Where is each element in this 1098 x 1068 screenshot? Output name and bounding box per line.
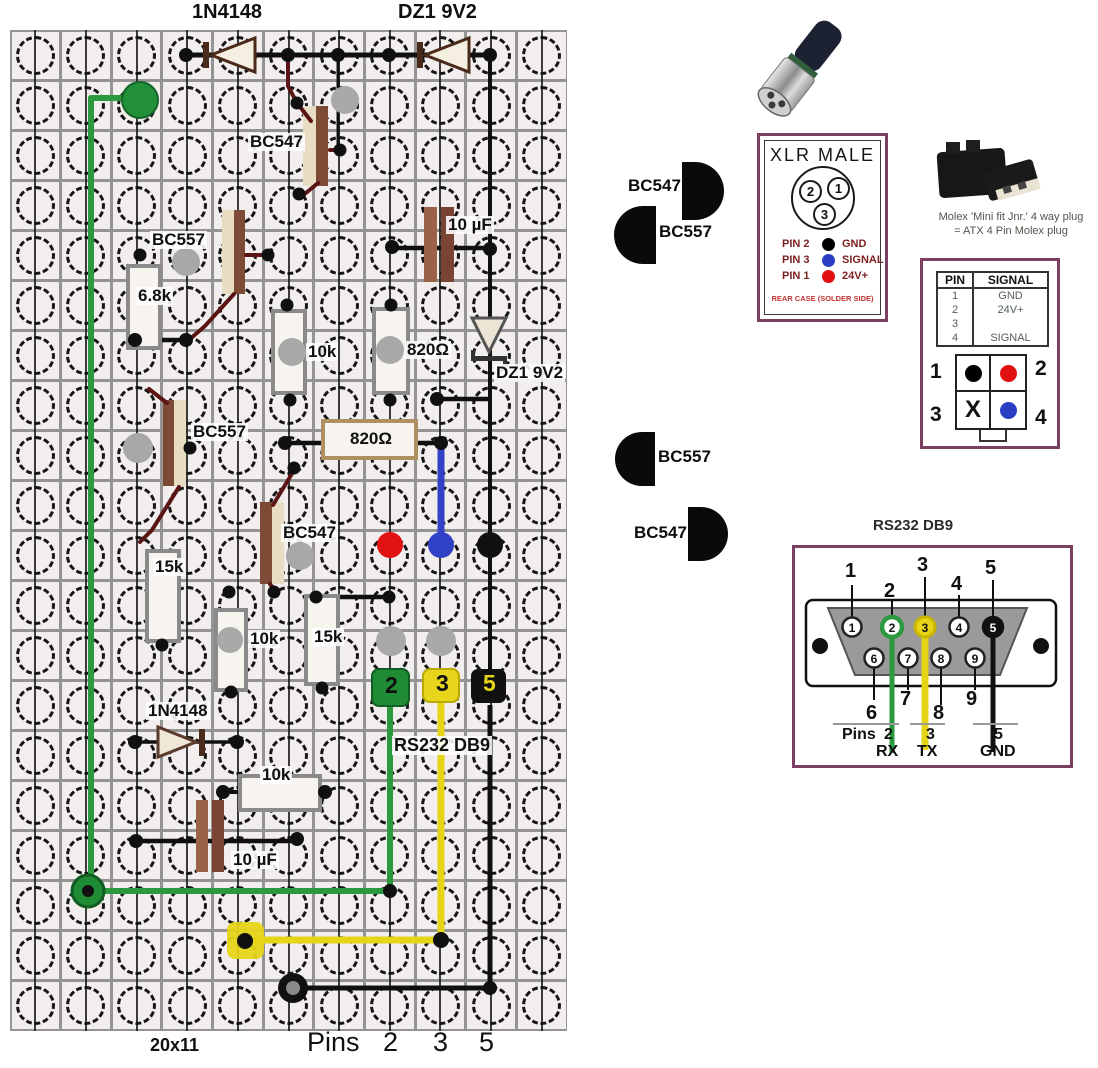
blue-dot — [428, 532, 454, 558]
label-1n4148-2: 1N4148 — [146, 702, 210, 720]
label-bc557-2: BC557 — [191, 423, 248, 441]
label-10uf-1: 10 µF — [446, 216, 494, 234]
xlr-signal-dot — [822, 254, 835, 267]
molex-num-4: 4 — [1035, 406, 1047, 430]
symbol-label-bc557-top: BC557 — [659, 222, 712, 242]
molex-latch — [979, 430, 1007, 442]
pad-3-number: 3 — [434, 671, 451, 695]
molex-row-pin: 1 — [938, 289, 974, 303]
circuit-overlay: 1 2 3 4 5 6 7 8 9 — [0, 0, 1098, 1068]
molex-row-signal — [974, 317, 1047, 331]
diode-1n4148-top — [203, 38, 255, 72]
label-10uf-2: 10 µF — [231, 851, 279, 869]
capacitor-10uf-bottom — [196, 800, 224, 872]
rs232-pin2-label: 2 — [884, 726, 893, 744]
rs232-leader-2: 2 — [884, 580, 895, 603]
xlr-24v-dot — [822, 270, 835, 283]
transistor-bc557-2 — [163, 400, 186, 486]
rs232-gnd-label: GND — [980, 743, 1016, 761]
rs232-leader-3: 3 — [917, 554, 928, 577]
transistor-bc557-1 — [222, 210, 245, 294]
xlr-pin1-circle: 1 — [827, 177, 850, 200]
label-bc557-1: BC557 — [150, 231, 207, 249]
solder-dots — [82, 48, 497, 995]
xlr-pin3-circle: 3 — [813, 203, 836, 226]
symbol-label-bc547-mid: BC547 — [634, 523, 687, 543]
label-dz1-2: DZ1 9V2 — [494, 364, 565, 382]
molex-row-signal: GND — [974, 289, 1047, 303]
molex-row-signal: SIGNAL — [974, 331, 1047, 345]
green-pad-top — [122, 82, 158, 118]
molex-num-3: 3 — [930, 403, 942, 427]
label-820-2: 820Ω — [338, 430, 404, 448]
molex-caption-2: = ATX 4 Pin Molex plug — [916, 225, 1098, 237]
black-dot-row11 — [477, 532, 503, 558]
xlr-title: XLR MALE — [760, 145, 885, 166]
rs232-leader-9: 9 — [966, 688, 977, 711]
molex-row-pin: 2 — [938, 303, 974, 317]
pad-2-number: 2 — [383, 673, 400, 697]
molex-pin1-dot — [965, 365, 982, 382]
molex-header-pin: PIN — [938, 273, 974, 289]
molex-row-pin: 3 — [938, 317, 974, 331]
xlr-legend-pin2: PIN 2 — [782, 238, 810, 250]
pins-caption-word: Pins — [305, 1028, 362, 1056]
label-1n4148-top: 1N4148 — [190, 2, 264, 23]
molex-pin2-cell — [991, 356, 1025, 392]
pins-caption-2: 2 — [381, 1028, 400, 1056]
zener-dz1-vertical — [471, 318, 507, 365]
pad-5-number: 5 — [481, 671, 498, 695]
diode-1n4148-bottom — [158, 727, 205, 757]
xlr-gnd-dot — [822, 238, 835, 251]
xlr-legend-row: PIN 1 24V+ — [760, 270, 885, 284]
molex-row-pin: 4 — [938, 331, 974, 345]
xlr-connector-photo — [753, 14, 849, 122]
black-pad-bottom-center — [286, 981, 300, 995]
rs232-leader-8: 8 — [933, 702, 944, 725]
molex-connector-diagram: X — [955, 354, 1027, 430]
xlr-legend-pin1: PIN 1 — [782, 270, 810, 282]
label-board-size: 20x11 — [148, 1036, 201, 1055]
rs232-rx-label: RX — [876, 743, 898, 761]
xlr-legend-pin3: PIN 3 — [782, 254, 810, 266]
symbol-label-bc557-mid: BC557 — [658, 447, 711, 467]
molex-num-2: 2 — [1035, 357, 1047, 381]
label-820-1: 820Ω — [405, 341, 451, 359]
rs232-pin3-label: 3 — [926, 726, 935, 744]
molex-row-signal: 24V+ — [974, 303, 1047, 317]
board-black-traces — [135, 55, 490, 988]
molex-header-signal: SIGNAL — [974, 273, 1047, 289]
molex-pin2-dot — [1000, 365, 1017, 382]
xlr-pin2-circle: 2 — [799, 180, 822, 203]
label-15k-1: 15k — [153, 558, 185, 576]
zener-dz1-top — [417, 38, 469, 72]
xlr-legend-24v: 24V+ — [842, 270, 868, 282]
rs232-leader-4: 4 — [951, 573, 962, 596]
xlr-footer: REAR CASE (SOLDER SIDE) — [760, 294, 885, 303]
label-dz1-top: DZ1 9V2 — [396, 2, 479, 23]
molex-num-1: 1 — [930, 360, 942, 384]
label-bc547-2: BC547 — [281, 524, 338, 542]
molex-panel: PIN SIGNAL 1GND 224V+ 3 4SIGNAL 1 2 3 4 … — [920, 258, 1060, 449]
rs232-pin5-label: 5 — [994, 726, 1003, 744]
rs232-leader-5: 5 — [985, 557, 996, 580]
xlr-legend-signal: SIGNAL — [842, 254, 884, 266]
molex-pin4-dot — [1000, 402, 1017, 419]
label-rs232-board: RS232 DB9 — [392, 736, 492, 755]
red-dot — [377, 532, 403, 558]
xlr-legend-gnd: GND — [842, 238, 866, 250]
label-bc547-1: BC547 — [248, 133, 305, 151]
pins-caption-5: 5 — [477, 1028, 496, 1056]
xlr-male-panel: XLR MALE 2 1 3 PIN 2 GND PIN 3 SIGNAL PI… — [757, 133, 888, 322]
symbol-label-bc547-top: BC547 — [628, 176, 681, 196]
transistor-bc547-2 — [260, 502, 284, 584]
rs232-title: RS232 DB9 — [873, 517, 953, 534]
molex-pin1-cell — [957, 356, 991, 392]
label-10k-1: 10k — [306, 343, 338, 361]
label-10k-2: 10k — [248, 630, 280, 648]
rs232-tx-label: TX — [917, 743, 937, 761]
xlr-legend-row: PIN 2 GND — [760, 238, 885, 252]
label-15k-2: 15k — [312, 628, 344, 646]
molex-caption-1: Molex 'Mini fit Jnr.' 4 way plug — [916, 211, 1098, 223]
stripboard-layout-diagram: 1 2 3 4 5 6 7 8 9 1N4148 DZ1 9V2 BC547 B… — [0, 0, 1098, 1068]
molex-table: PIN SIGNAL 1GND 224V+ 3 4SIGNAL — [936, 271, 1049, 347]
molex-pin3-x: X — [965, 396, 981, 424]
rs232-leader-6: 6 — [866, 702, 877, 725]
rs232-leader-7: 7 — [900, 688, 911, 711]
rs232-leader-1: 1 — [845, 560, 856, 583]
pins-caption-3: 3 — [431, 1028, 450, 1056]
molex-pin3-cell: X — [957, 392, 991, 428]
molex-connector-photo — [936, 140, 1040, 202]
label-6k8: 6.8k — [136, 287, 173, 305]
xlr-legend-row: PIN 3 SIGNAL — [760, 254, 885, 268]
molex-pin4-cell — [991, 392, 1025, 428]
label-10k-3: 10k — [260, 766, 292, 784]
rs232-pins-word: Pins — [842, 726, 876, 744]
